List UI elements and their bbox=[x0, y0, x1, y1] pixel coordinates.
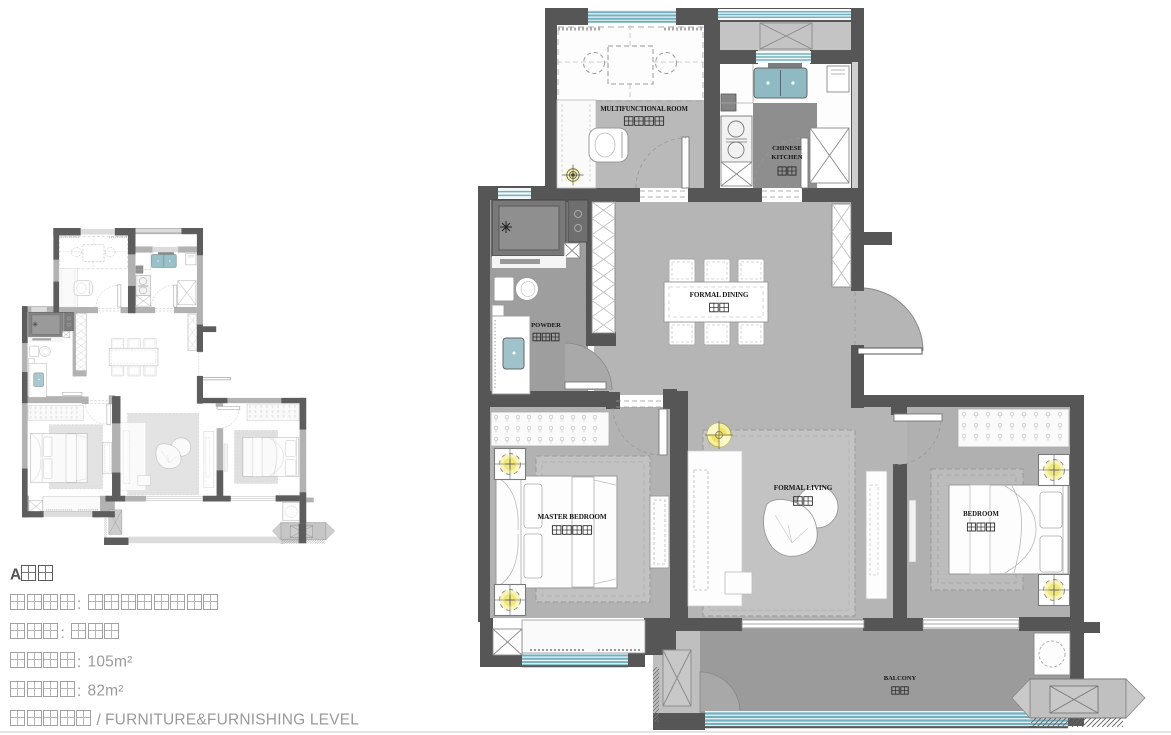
svg-text:FORMAL DINING: FORMAL DINING bbox=[690, 291, 749, 299]
svg-text:BALCONY: BALCONY bbox=[884, 675, 917, 682]
svg-text:MASTER BEDROOM: MASTER BEDROOM bbox=[537, 513, 606, 521]
svg-text:FORMAL LIVING: FORMAL LIVING bbox=[774, 484, 833, 492]
svg-text:CHINESE: CHINESE bbox=[772, 145, 802, 152]
svg-text:BEDROOM: BEDROOM bbox=[963, 511, 999, 518]
svg-text:MULTIFUNCTIONAL ROOM: MULTIFUNCTIONAL ROOM bbox=[600, 106, 688, 113]
svg-text:KITCHEN: KITCHEN bbox=[771, 154, 802, 161]
svg-text:POWDER: POWDER bbox=[531, 322, 561, 329]
